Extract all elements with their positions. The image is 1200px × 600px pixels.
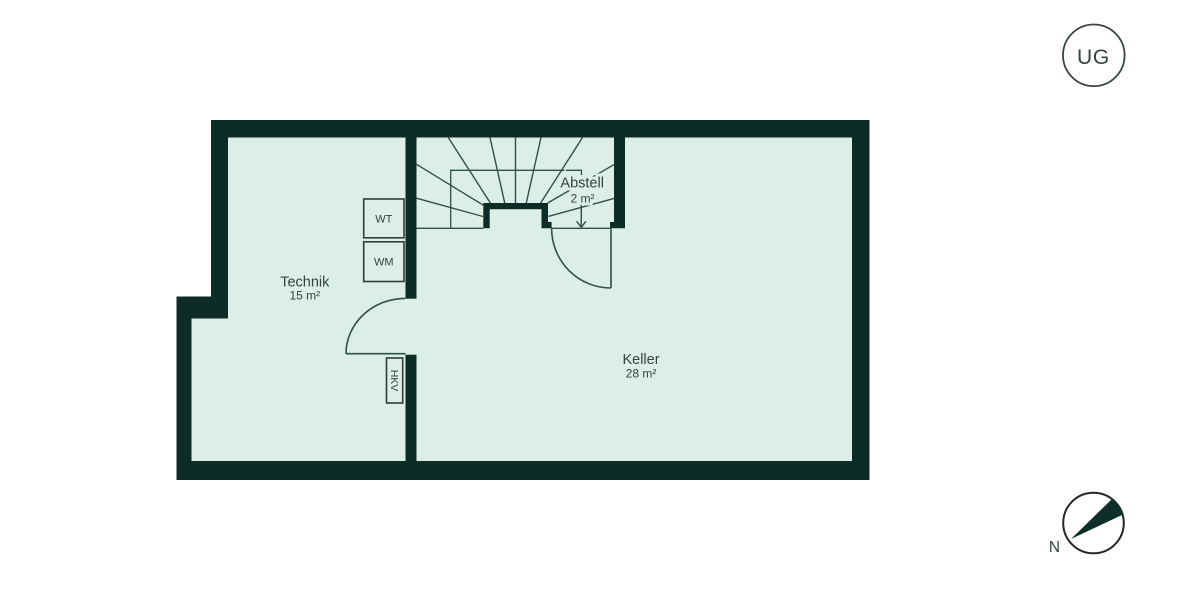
- svg-text:WM: WM: [374, 257, 394, 269]
- svg-text:Abstell: Abstell: [560, 176, 604, 192]
- svg-text:15 m²: 15 m²: [289, 289, 320, 303]
- svg-text:HKV: HKV: [388, 370, 400, 392]
- svg-text:UG: UG: [1077, 46, 1110, 69]
- svg-text:28 m²: 28 m²: [626, 367, 657, 381]
- svg-text:WT: WT: [375, 214, 392, 226]
- svg-text:N: N: [1049, 539, 1060, 556]
- svg-text:2 m²: 2 m²: [571, 191, 595, 205]
